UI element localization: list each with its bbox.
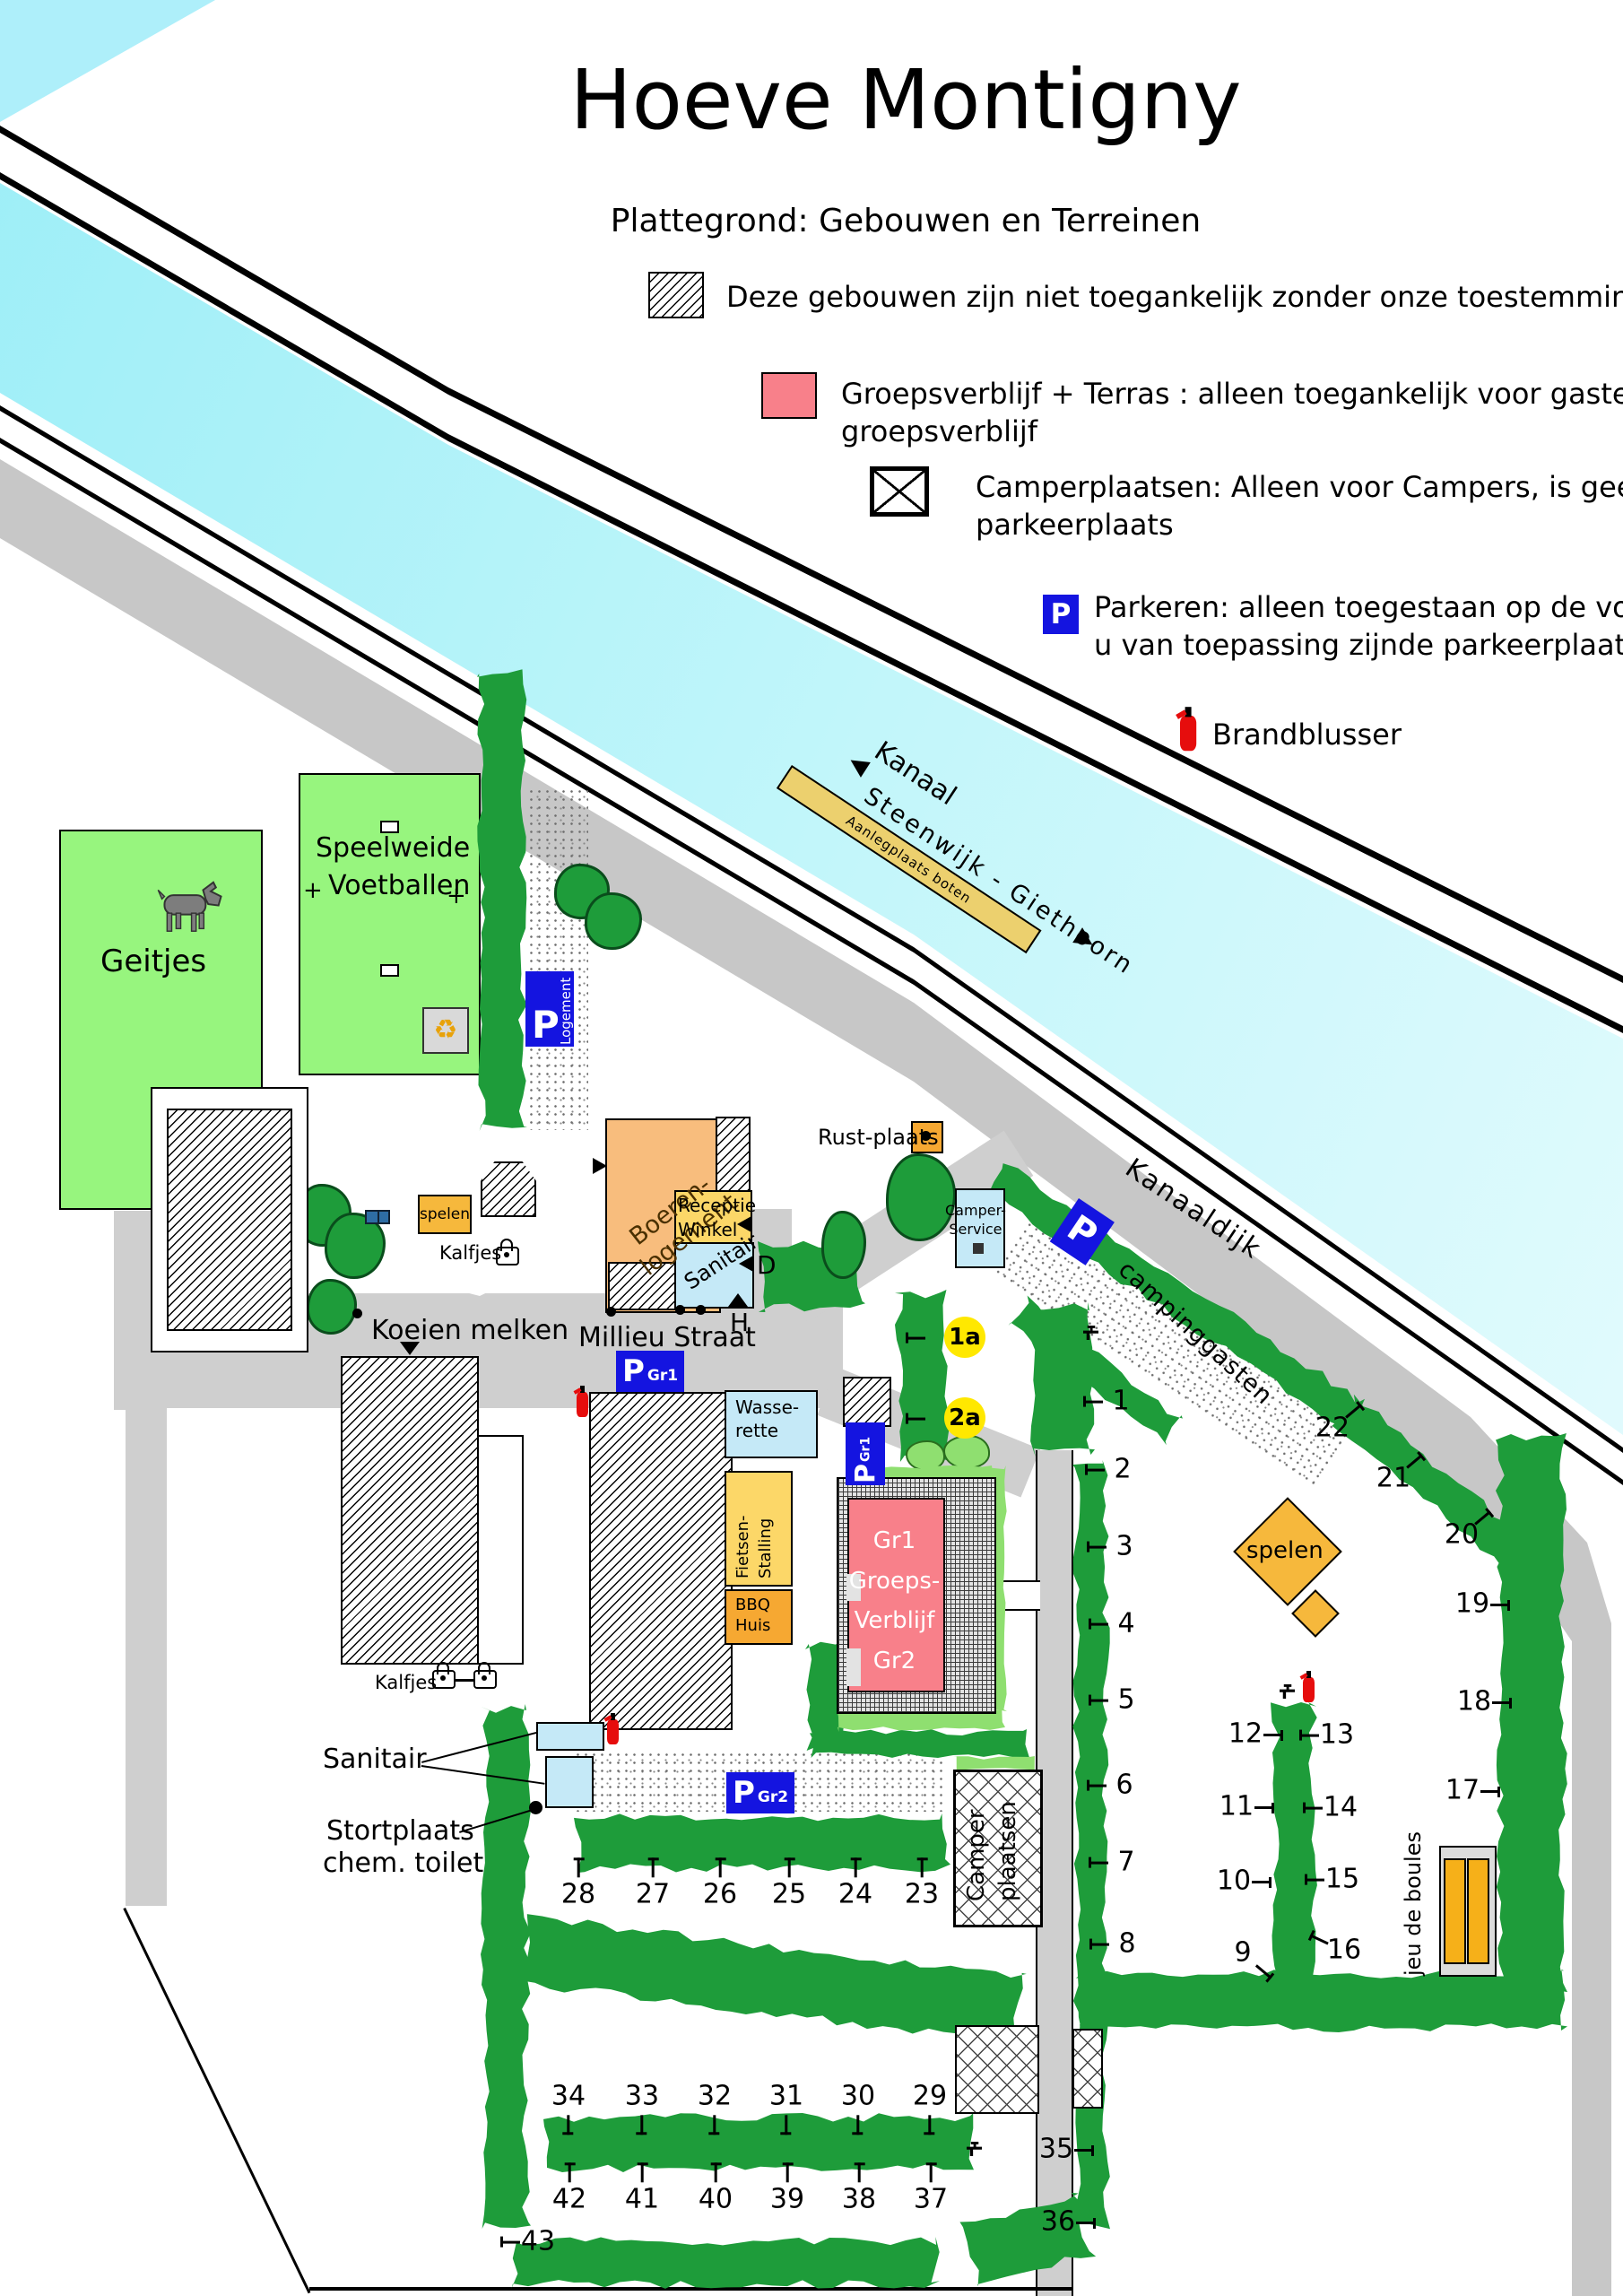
pitch-tick: [858, 2162, 861, 2182]
boeren-restricted-wing: [716, 1117, 751, 1192]
stortplaats-dot: [529, 1801, 542, 1814]
fire-extinguisher-icon: [1303, 1677, 1315, 1702]
pitch-number: 36: [1041, 2206, 1075, 2238]
pitch-tick: [641, 2115, 644, 2135]
koeien-melken-label: Koeien melken: [371, 1315, 568, 1346]
legend-parking-sign: P: [1043, 595, 1079, 634]
campsite-map: Aanlegplaats boten: [0, 0, 1623, 2296]
legend-groeps-line2: groepsverblijf: [841, 414, 1037, 448]
parking-gr1-label: Gr1: [858, 1437, 872, 1462]
pitch-number: 2: [1114, 1454, 1131, 1485]
hedge: [1496, 1433, 1567, 1994]
pitch-number: 10: [1217, 1865, 1251, 1897]
spelen-playground-box: spelen: [418, 1195, 472, 1234]
pitch-number: 15: [1325, 1864, 1359, 1895]
legend-parking-line1: Parkeren: alleen toegestaan op de voor: [1094, 590, 1623, 624]
kalfjes-label: Kalfjes: [375, 1672, 437, 1693]
spelen-box-label: spelen: [420, 1205, 470, 1223]
recycle-icon: ♻: [434, 1017, 458, 1044]
pitch-number: 35: [1039, 2134, 1073, 2165]
page-subtitle: Plattegrond: Gebouwen en Terreinen: [592, 203, 1219, 239]
camper-service-drain: [973, 1243, 984, 1254]
parking-sign-gr1-side: P Gr1: [846, 1422, 885, 1485]
pitch-number: 8: [1118, 1928, 1135, 1960]
pitch-tick: [921, 1857, 924, 1877]
legend-camper-line1: Camperplaatsen: Alleen voor Campers, is …: [976, 470, 1623, 504]
pitch-tick: [1490, 1604, 1510, 1606]
pitch-tick: [1076, 2222, 1096, 2224]
pitch-number: 14: [1324, 1792, 1358, 1823]
water-tap-icon: [1280, 1684, 1295, 1699]
pitch-tick: [1089, 1944, 1109, 1946]
pitch-tick: [1089, 1862, 1108, 1865]
goat-icon: [154, 877, 231, 936]
receptie-line1: Receptie: [678, 1195, 756, 1216]
pitch-tick: [500, 2241, 520, 2244]
gr-line: Groeps-: [847, 1561, 942, 1602]
parking-p: P: [532, 1003, 560, 1047]
pitch-number: 7: [1117, 1847, 1134, 1878]
hedge: [895, 1290, 950, 1462]
pitch-tick: [1252, 1881, 1271, 1883]
jeu-court-lane: [1444, 1858, 1466, 1964]
legend-camper-text: Camperplaatsen: Alleen voor Campers, is …: [976, 468, 1623, 544]
parking-sign-gr2: P Gr2: [726, 1772, 794, 1813]
pitch-tick: [1087, 1785, 1107, 1787]
pitch-number: 5: [1117, 1684, 1134, 1716]
bbq-line2: Huis: [735, 1616, 770, 1635]
spelen-diamond-label: spelen: [1246, 1537, 1324, 1564]
pitch-tick: [857, 2115, 860, 2135]
parking-sign-gr1-street: P Gr1: [616, 1351, 684, 1392]
pitch-number: 43: [521, 2226, 555, 2257]
hedge: [959, 2191, 1096, 2287]
stortplaats-label-2: chem. toilet: [323, 1848, 483, 1879]
parking-p: P: [850, 1464, 881, 1483]
pitch-number: 12: [1228, 1718, 1263, 1750]
parking-gr2-label: Gr2: [758, 1788, 788, 1806]
hedge: [1076, 1970, 1567, 2032]
legend-camper-swatch: [870, 466, 929, 517]
hedge: [543, 2113, 974, 2172]
wasserette-line1: Wasse-: [735, 1396, 799, 1418]
gr-line: Gr2: [847, 1641, 942, 1682]
pitch-number: 39: [770, 2184, 804, 2215]
barn-restricted: [167, 1109, 292, 1331]
pitch-number: 31: [769, 2081, 803, 2112]
fietsen-line2: Stalling: [756, 1518, 775, 1578]
camper-plaatsen-line2: plaatsen: [994, 1801, 1021, 1901]
bench: [365, 1210, 390, 1224]
pitch-tick: [1299, 1735, 1319, 1737]
receptie-line2: Winkel: [678, 1219, 737, 1240]
pitch-tick: [719, 1857, 722, 1877]
hedge: [1028, 1302, 1095, 1457]
kalfjes-label: Kalfjes: [439, 1242, 501, 1264]
page-title: Hoeve Montigny: [502, 52, 1309, 148]
barn-annex: [477, 1435, 524, 1665]
hedge: [1271, 1702, 1317, 2012]
camper-area-south: [955, 2025, 1039, 2114]
pitch-tick: [929, 2115, 932, 2135]
pitch-number: 41: [625, 2184, 659, 2215]
pitch-number: 9: [1234, 1937, 1251, 1969]
pitch-tick: [1254, 1806, 1274, 1809]
pitch-number: 23: [905, 1879, 939, 1910]
padlock-icon: [473, 1670, 497, 1689]
pitch-number: 4: [1117, 1608, 1134, 1639]
door-h-arrow: [728, 1293, 748, 1307]
pitch-number: 30: [841, 2081, 875, 2112]
pitch-number: 42: [552, 2184, 586, 2215]
pitch-tick: [785, 2115, 788, 2135]
bush: [943, 1435, 990, 1469]
legend-restricted-swatch: [648, 272, 704, 318]
camper-plaatsen-line1: Camper: [963, 1809, 990, 1901]
sanitair-hut: [536, 1722, 604, 1751]
pitch-tick: [855, 1857, 857, 1877]
lock-link-line: [454, 1679, 475, 1682]
geitjes-label: Geitjes: [100, 944, 206, 979]
door-d-label: D: [757, 1250, 777, 1280]
goal-icon: [380, 821, 399, 833]
pitch-tick: [652, 1857, 655, 1877]
pitch-number: 29: [913, 2081, 947, 2112]
footpath-stippled: [527, 787, 588, 1130]
fietsen-line1: Fietsen-: [733, 1515, 752, 1578]
gr-line: Gr1: [847, 1521, 942, 1561]
pitch-number: 34: [551, 2081, 586, 2112]
spelen-diamond-small: [1291, 1589, 1340, 1638]
hedge: [1072, 1460, 1110, 2230]
pitch-number: 11: [1219, 1791, 1254, 1822]
legend-groeps-swatch: [761, 372, 817, 419]
boundary-line: [309, 2287, 1072, 2291]
pitch-tick: [1085, 1469, 1105, 1472]
door-h-label: H: [730, 1308, 749, 1337]
pitch-tick: [930, 2162, 933, 2182]
legend-camper-line2: parkeerplaats: [976, 508, 1174, 542]
jeu-de-boules-label: jeu de boules: [1401, 1846, 1426, 1976]
spot-2a: 2a: [944, 1397, 985, 1439]
hedge: [477, 669, 527, 1131]
pitch-number: 16: [1327, 1935, 1361, 1966]
fire-extinguisher-icon: [577, 1392, 588, 1417]
pitch-number: 3: [1115, 1531, 1133, 1562]
shed-restricted: [481, 1161, 536, 1217]
wasserette-line2: rette: [735, 1420, 778, 1441]
entrance-arrow: [593, 1158, 607, 1174]
groeps-restricted-box: [843, 1377, 891, 1427]
sanitair-pointer-label: Sanitair: [323, 1744, 427, 1775]
wasserette-label: Wasse- rette: [735, 1396, 799, 1442]
pitch-tick: [1089, 1623, 1108, 1626]
speelweide-label-1: Speelweide: [316, 832, 470, 864]
pitch-tick: [1074, 2149, 1094, 2152]
street-marker-dot: [352, 1309, 362, 1318]
street-marker-dot: [696, 1305, 706, 1315]
gr-line: Verblijf: [847, 1601, 942, 1641]
pitch-number: 28: [561, 1879, 595, 1910]
field-corner-mark: +: [303, 877, 323, 904]
pitch-number: 27: [636, 1879, 670, 1910]
fire-extinguisher-icon: [607, 1719, 619, 1744]
parking-logement-label: Logement: [558, 973, 574, 1045]
camper-plaatsen-label: Camper plaatsen: [961, 1794, 1024, 1901]
pitch-tick: [715, 2162, 717, 2182]
hedge: [509, 2237, 940, 2289]
legend-parking-p: P: [1051, 598, 1072, 631]
rust-plaats-label: Rust-plaats: [818, 1125, 939, 1150]
parking-sign-logement: P Logement: [525, 971, 574, 1047]
camper-service-line1: Camper-: [945, 1202, 1006, 1219]
pitch-tick: [1089, 1700, 1108, 1702]
legend-fire-extinguisher-icon: [1180, 716, 1196, 751]
pitch-tick: [906, 1337, 925, 1340]
pitch-tick: [714, 2115, 716, 2135]
pitch-tick: [1263, 1734, 1283, 1736]
pitch-number: 20: [1445, 1519, 1479, 1551]
legend-groeps-text: Groepsverblijf + Terras : alleen toegank…: [841, 375, 1623, 450]
boundary-line: [123, 1908, 310, 2293]
street-marker-dot: [606, 1307, 616, 1317]
bbq-line1: BBQ: [735, 1596, 770, 1614]
camper-service-label: Camper- Service: [945, 1202, 1006, 1239]
parking-p: P: [622, 1353, 645, 1389]
stortplaats-label: Stortplaats: [326, 1815, 474, 1847]
pitch-number: 6: [1115, 1770, 1133, 1801]
pitch-number: 21: [1376, 1463, 1410, 1494]
legend-restricted-text: Deze gebouwen zijn niet toegankelijk zon…: [726, 280, 1623, 314]
pitch-tick: [786, 2162, 789, 2182]
barn-restricted: [589, 1392, 733, 1730]
pitch-tick: [1083, 1401, 1103, 1404]
pitch-number: 38: [842, 2184, 876, 2215]
spot-1a: 1a: [944, 1317, 985, 1358]
pitch-tick: [641, 2162, 644, 2182]
hedge: [481, 1704, 531, 2229]
pitch-tick: [1480, 1790, 1500, 1793]
pitch-number: 24: [838, 1879, 872, 1910]
sanitair-hut: [545, 1756, 594, 1808]
pitch-tick: [568, 2162, 571, 2182]
pitch-tick: [906, 1418, 925, 1421]
parking-gr1-label: Gr1: [647, 1367, 678, 1385]
pitch-number: 17: [1445, 1775, 1480, 1806]
pitch-number: 22: [1315, 1413, 1350, 1444]
pitch-number: 40: [699, 2184, 733, 2215]
pitch-number: 26: [703, 1879, 737, 1910]
pitch-tick: [577, 1857, 580, 1877]
pitch-number: 32: [698, 2081, 732, 2112]
recycle-point: ♻: [422, 1007, 469, 1054]
bbq-huis-label: BBQ Huis: [735, 1595, 770, 1637]
groepsverblijf-label: Gr1 Groeps- Verblijf Gr2: [847, 1521, 942, 1682]
legend-groeps-line1: Groepsverblijf + Terras : alleen toegank…: [841, 377, 1623, 411]
farm-lane: [126, 1404, 167, 1906]
camper-service-line2: Service: [949, 1221, 1002, 1238]
pitch-number: 33: [625, 2081, 659, 2112]
pitch-tick: [1303, 1807, 1323, 1810]
jeu-court-lane: [1467, 1858, 1489, 1964]
parking-p: P: [733, 1775, 755, 1811]
pitch-number: 25: [772, 1879, 806, 1910]
tree: [585, 892, 642, 950]
hedge: [518, 1912, 1028, 2048]
pitch-number: 37: [914, 2184, 948, 2215]
barn-restricted: [341, 1356, 479, 1665]
hedge: [574, 1813, 950, 1873]
pitch-tick: [568, 2115, 570, 2135]
street-marker-dot: [675, 1305, 685, 1315]
legend-brandblusser-text: Brandblusser: [1212, 717, 1402, 752]
speelweide-label-2: Voetballen: [328, 870, 470, 901]
fietsenstalling-label: Fietsen- Stalling: [732, 1478, 777, 1578]
pitch-tick: [1305, 1879, 1324, 1882]
legend-parking-line2: u van toepassing zijnde parkeerplaatsen: [1094, 628, 1623, 662]
legend-parking-text: Parkeren: alleen toegestaan op de voor u…: [1094, 588, 1623, 664]
pitch-number: 13: [1320, 1719, 1354, 1751]
camper-area-south: [1072, 2029, 1103, 2109]
goal-icon: [380, 964, 399, 977]
pitch-tick: [1087, 1546, 1107, 1549]
pitch-tick: [1492, 1701, 1512, 1704]
pitch-number: 18: [1457, 1686, 1491, 1718]
pitch-number: 19: [1455, 1588, 1489, 1620]
pitch-tick: [788, 1857, 791, 1877]
pitch-number: 1: [1112, 1386, 1129, 1417]
